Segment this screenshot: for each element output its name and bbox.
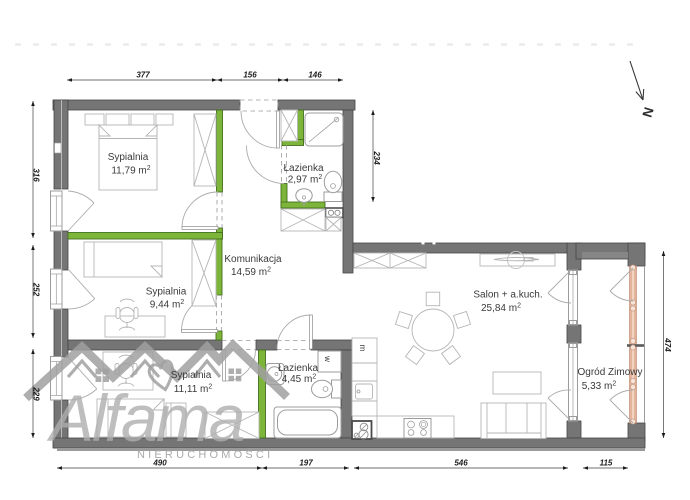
svg-text:252: 252 <box>32 282 41 297</box>
svg-text:197: 197 <box>299 459 313 468</box>
svg-text:Sypialnia: Sypialnia <box>146 287 187 298</box>
svg-text:146: 146 <box>308 71 322 80</box>
svg-text:546: 546 <box>454 459 468 468</box>
svg-text:Salon + a.kuch.: Salon + a.kuch. <box>473 290 542 301</box>
svg-text:m: m <box>358 345 367 352</box>
svg-text:Łazienka: Łazienka <box>283 163 323 174</box>
svg-text:490: 490 <box>152 459 167 468</box>
svg-text:474: 474 <box>663 337 672 352</box>
svg-text:156: 156 <box>243 71 257 80</box>
svg-text:Łazienka: Łazienka <box>278 363 318 374</box>
svg-text:Sypialnia: Sypialnia <box>108 152 149 163</box>
svg-text:377: 377 <box>136 71 150 80</box>
svg-text:316: 316 <box>32 168 41 182</box>
svg-text:229: 229 <box>32 386 41 401</box>
svg-text:14,59 m2: 14,59 m2 <box>231 267 271 279</box>
svg-text:234: 234 <box>372 150 381 165</box>
svg-text:5,33 m2: 5,33 m2 <box>582 381 617 393</box>
svg-text:9,44 m2: 9,44 m2 <box>150 299 185 311</box>
svg-text:w: w <box>323 355 332 362</box>
svg-text:Komunikacja: Komunikacja <box>224 254 282 265</box>
svg-text:2,97 m2: 2,97 m2 <box>288 174 323 186</box>
svg-text:Ogród Zimowy: Ogród Zimowy <box>577 367 642 378</box>
svg-text:4,45 m2: 4,45 m2 <box>282 374 317 386</box>
svg-text:Sypialnia: Sypialnia <box>171 370 212 381</box>
svg-text:11,11 m2: 11,11 m2 <box>174 384 213 396</box>
svg-text:25,84 m2: 25,84 m2 <box>481 303 521 315</box>
svg-text:11,79 m2: 11,79 m2 <box>111 165 150 177</box>
svg-text:Alfama: Alfama <box>46 381 244 455</box>
svg-text:115: 115 <box>600 459 613 468</box>
